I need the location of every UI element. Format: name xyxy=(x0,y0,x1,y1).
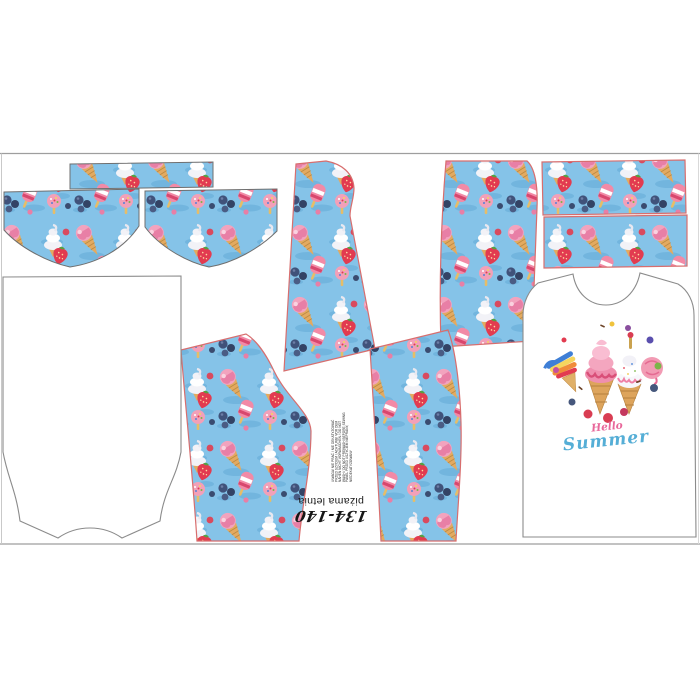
piece-waistband-strip-right-top xyxy=(542,160,686,215)
piece-briefs-front-right xyxy=(145,189,277,267)
care-line: NIEDEKATYZOWANY xyxy=(349,393,353,482)
fabric-panel-image: UWAGA! NIE PRAĆ / NIE DEKATYZOWAĆ PRZED … xyxy=(0,0,700,700)
piece-shirt-front xyxy=(523,273,696,537)
piece-pant-leg-center xyxy=(284,161,375,371)
care-instructions-text: UWAGA! NIE PRAĆ / NIE DEKATYZOWAĆ PRZED … xyxy=(331,393,352,482)
piece-briefs-front-left xyxy=(4,189,139,267)
product-name-label: piżama letnia xyxy=(271,495,391,507)
fabric-panel-svg xyxy=(0,0,700,700)
piece-shirt-back xyxy=(3,276,181,538)
piece-waistband-strip-right-bottom xyxy=(544,215,687,268)
size-label: 134-140 xyxy=(269,507,392,525)
piece-waistband-strip-left xyxy=(70,162,213,189)
